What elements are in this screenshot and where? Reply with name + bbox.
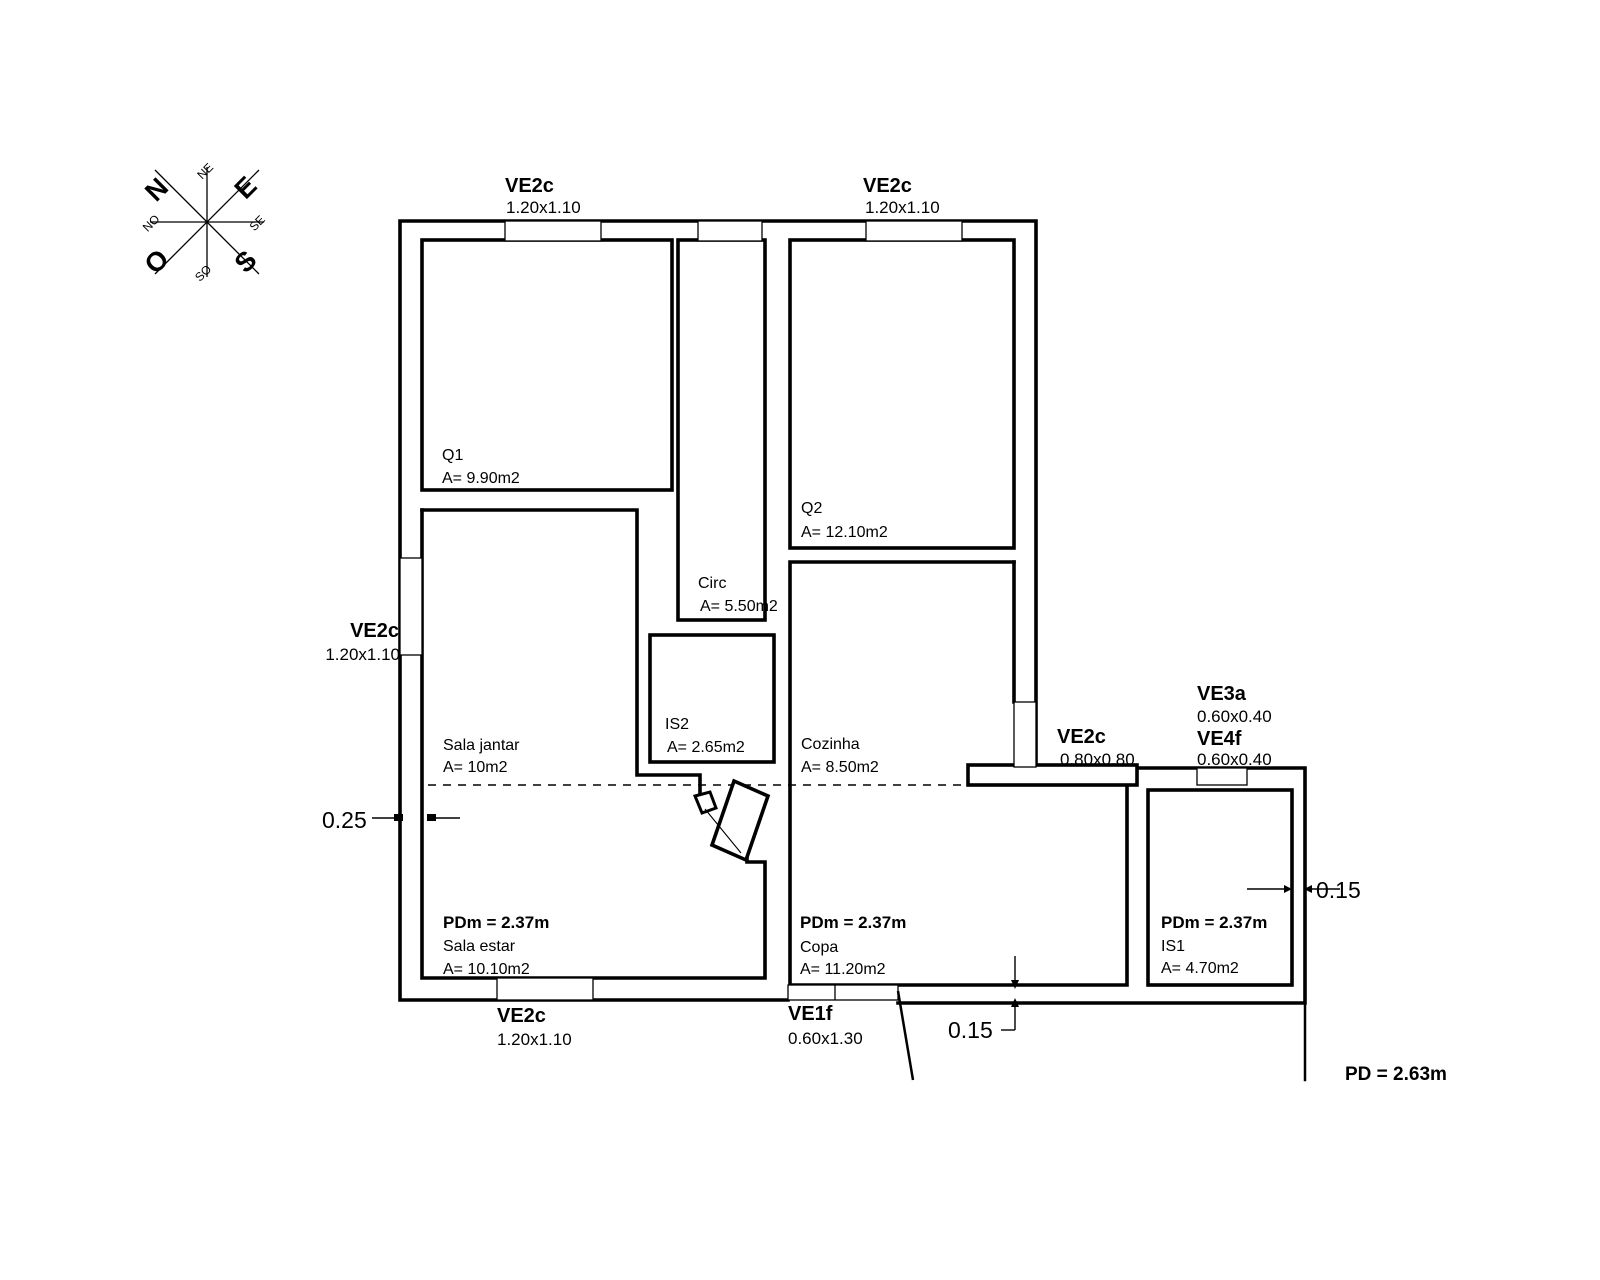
window-ve2c-bottom [497,978,593,1000]
room-circ-walls [678,240,765,620]
room-is1-name: IS1 [1161,938,1185,955]
room-q2-name: Q2 [801,500,822,517]
room-cozinha-name: Cozinha [801,736,860,753]
interior-door [695,781,768,860]
compass-label-se: SE [247,213,268,234]
room-labels: Q1 A= 9.90m2 Q2 A= 12.10m2 Circ A= 5.50m… [442,447,1267,978]
window-ve4f [1197,768,1247,785]
room-is2-name: IS2 [665,716,689,733]
label-ve4f: VE4f [1197,728,1242,750]
door-ve1f-threshold [788,985,898,1000]
outer-wall [400,221,1305,1003]
room-q1-name: Q1 [442,447,463,464]
label-ve2c-top-left-size: 1.20x1.10 [506,198,581,217]
room-sala-jantar-area: A= 10m2 [443,759,508,776]
compass-label-no: NO [140,212,163,235]
label-ve2c-left: VE2c [350,620,399,642]
dim-wall-right: 0.15 [1316,877,1361,903]
dimension-left-025 [372,814,460,821]
label-ve2c-bottom-size: 1.20x1.10 [497,1030,572,1049]
compass-label-n: N [139,172,174,207]
room-circ-name: Circ [698,575,726,592]
label-ve1f-size: 0.60x1.30 [788,1029,863,1048]
room-q2-area: A= 12.10m2 [801,524,888,541]
room-copa-area: A= 11.20m2 [800,961,886,978]
dimension-bottom-015 [1001,956,1019,1030]
room-copa-name: Copa [800,939,838,956]
label-ve2c-kitchen: VE2c [1057,726,1106,748]
compass-label-so: SO [192,262,214,284]
compass-label-ne: NE [194,160,216,182]
label-ve3a-size: 0.60x0.40 [1197,707,1272,726]
room-is1-pdm: PDm = 2.37m [1161,913,1267,932]
label-ve2c-left-size: 1.20x1.10 [325,645,400,664]
dim-tick [427,814,436,821]
room-copa-pdm: PDm = 2.37m [800,913,906,932]
room-q2-walls [790,240,1014,548]
window-ve2c-left [400,558,422,655]
label-ve2c-top-right-size: 1.20x1.10 [865,198,940,217]
room-is2-area: A= 2.65m2 [667,739,745,756]
window-circ-top [698,221,762,241]
label-ve2c-bottom: VE2c [497,1005,546,1027]
label-ve3a: VE3a [1197,683,1247,705]
label-ve2c-kitchen-size: 0.80x0.80 [1060,750,1135,769]
floor-plan-page: N E S O NE SE SO NO [0,0,1600,1280]
room-circ-area: A= 5.50m2 [700,598,778,615]
window-ve2c-kitchen [1014,702,1036,767]
room-is1-walls [1148,790,1292,985]
room-sala-estar-pdm: PDm = 2.37m [443,913,549,932]
window-openings [400,221,1247,1000]
window-ve2c-top-left [505,221,601,241]
room-sala-jantar-name: Sala jantar [443,737,520,754]
room-sala-estar-name: Sala estar [443,938,516,955]
label-ve2c-top-left: VE2c [505,175,554,197]
room-q1-area: A= 9.90m2 [442,470,520,487]
dim-tick [394,814,403,821]
dim-wall-bottom: 0.15 [948,1017,993,1043]
compass-label-e: E [229,171,263,205]
label-ve4f-size: 0.60x0.40 [1197,750,1272,769]
window-ve2c-top-right [866,221,962,241]
room-cozinha-area: A= 8.50m2 [801,759,879,776]
room-is1-area: A= 4.70m2 [1161,960,1239,977]
door-leaf [712,781,768,860]
label-ve2c-top-right: VE2c [863,175,912,197]
ceiling-height-note: PD = 2.63m [1345,1064,1447,1085]
floor-plan-drawing: N E S O NE SE SO NO [0,0,1600,1280]
room-sala-estar-area: A= 10.10m2 [443,961,530,978]
dim-wall-left: 0.25 [322,807,367,833]
compass-label-o: O [139,244,175,280]
compass-label-s: S [229,245,263,279]
label-ve1f: VE1f [788,1003,833,1025]
